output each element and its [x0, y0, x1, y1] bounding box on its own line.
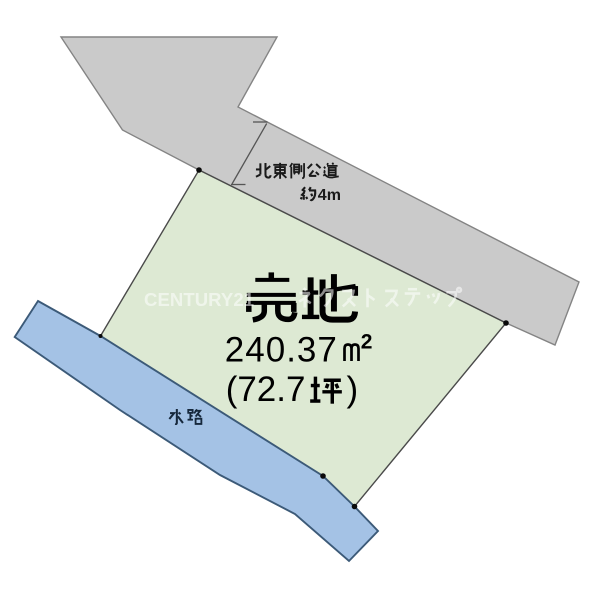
- svg-text:240.37: 240.37: [225, 330, 338, 369]
- svg-text:(72.7: (72.7: [226, 370, 306, 409]
- svg-text:2: 2: [361, 331, 373, 354]
- svg-text:CENTURY21: CENTURY21: [144, 289, 254, 310]
- svg-text:4m: 4m: [318, 187, 341, 204]
- svg-text:): ): [347, 370, 359, 409]
